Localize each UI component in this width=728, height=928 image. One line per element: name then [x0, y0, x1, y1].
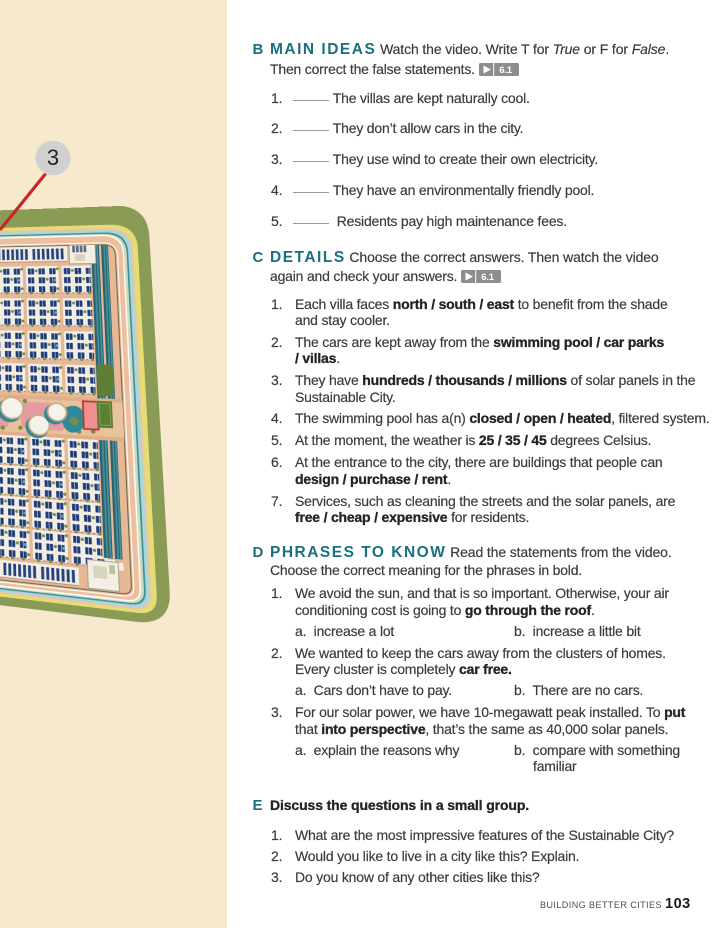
svg-text:3: 3 [47, 145, 59, 170]
svg-text:6.1: 6.1 [481, 272, 495, 283]
svg-text:6.1: 6.1 [499, 65, 513, 76]
